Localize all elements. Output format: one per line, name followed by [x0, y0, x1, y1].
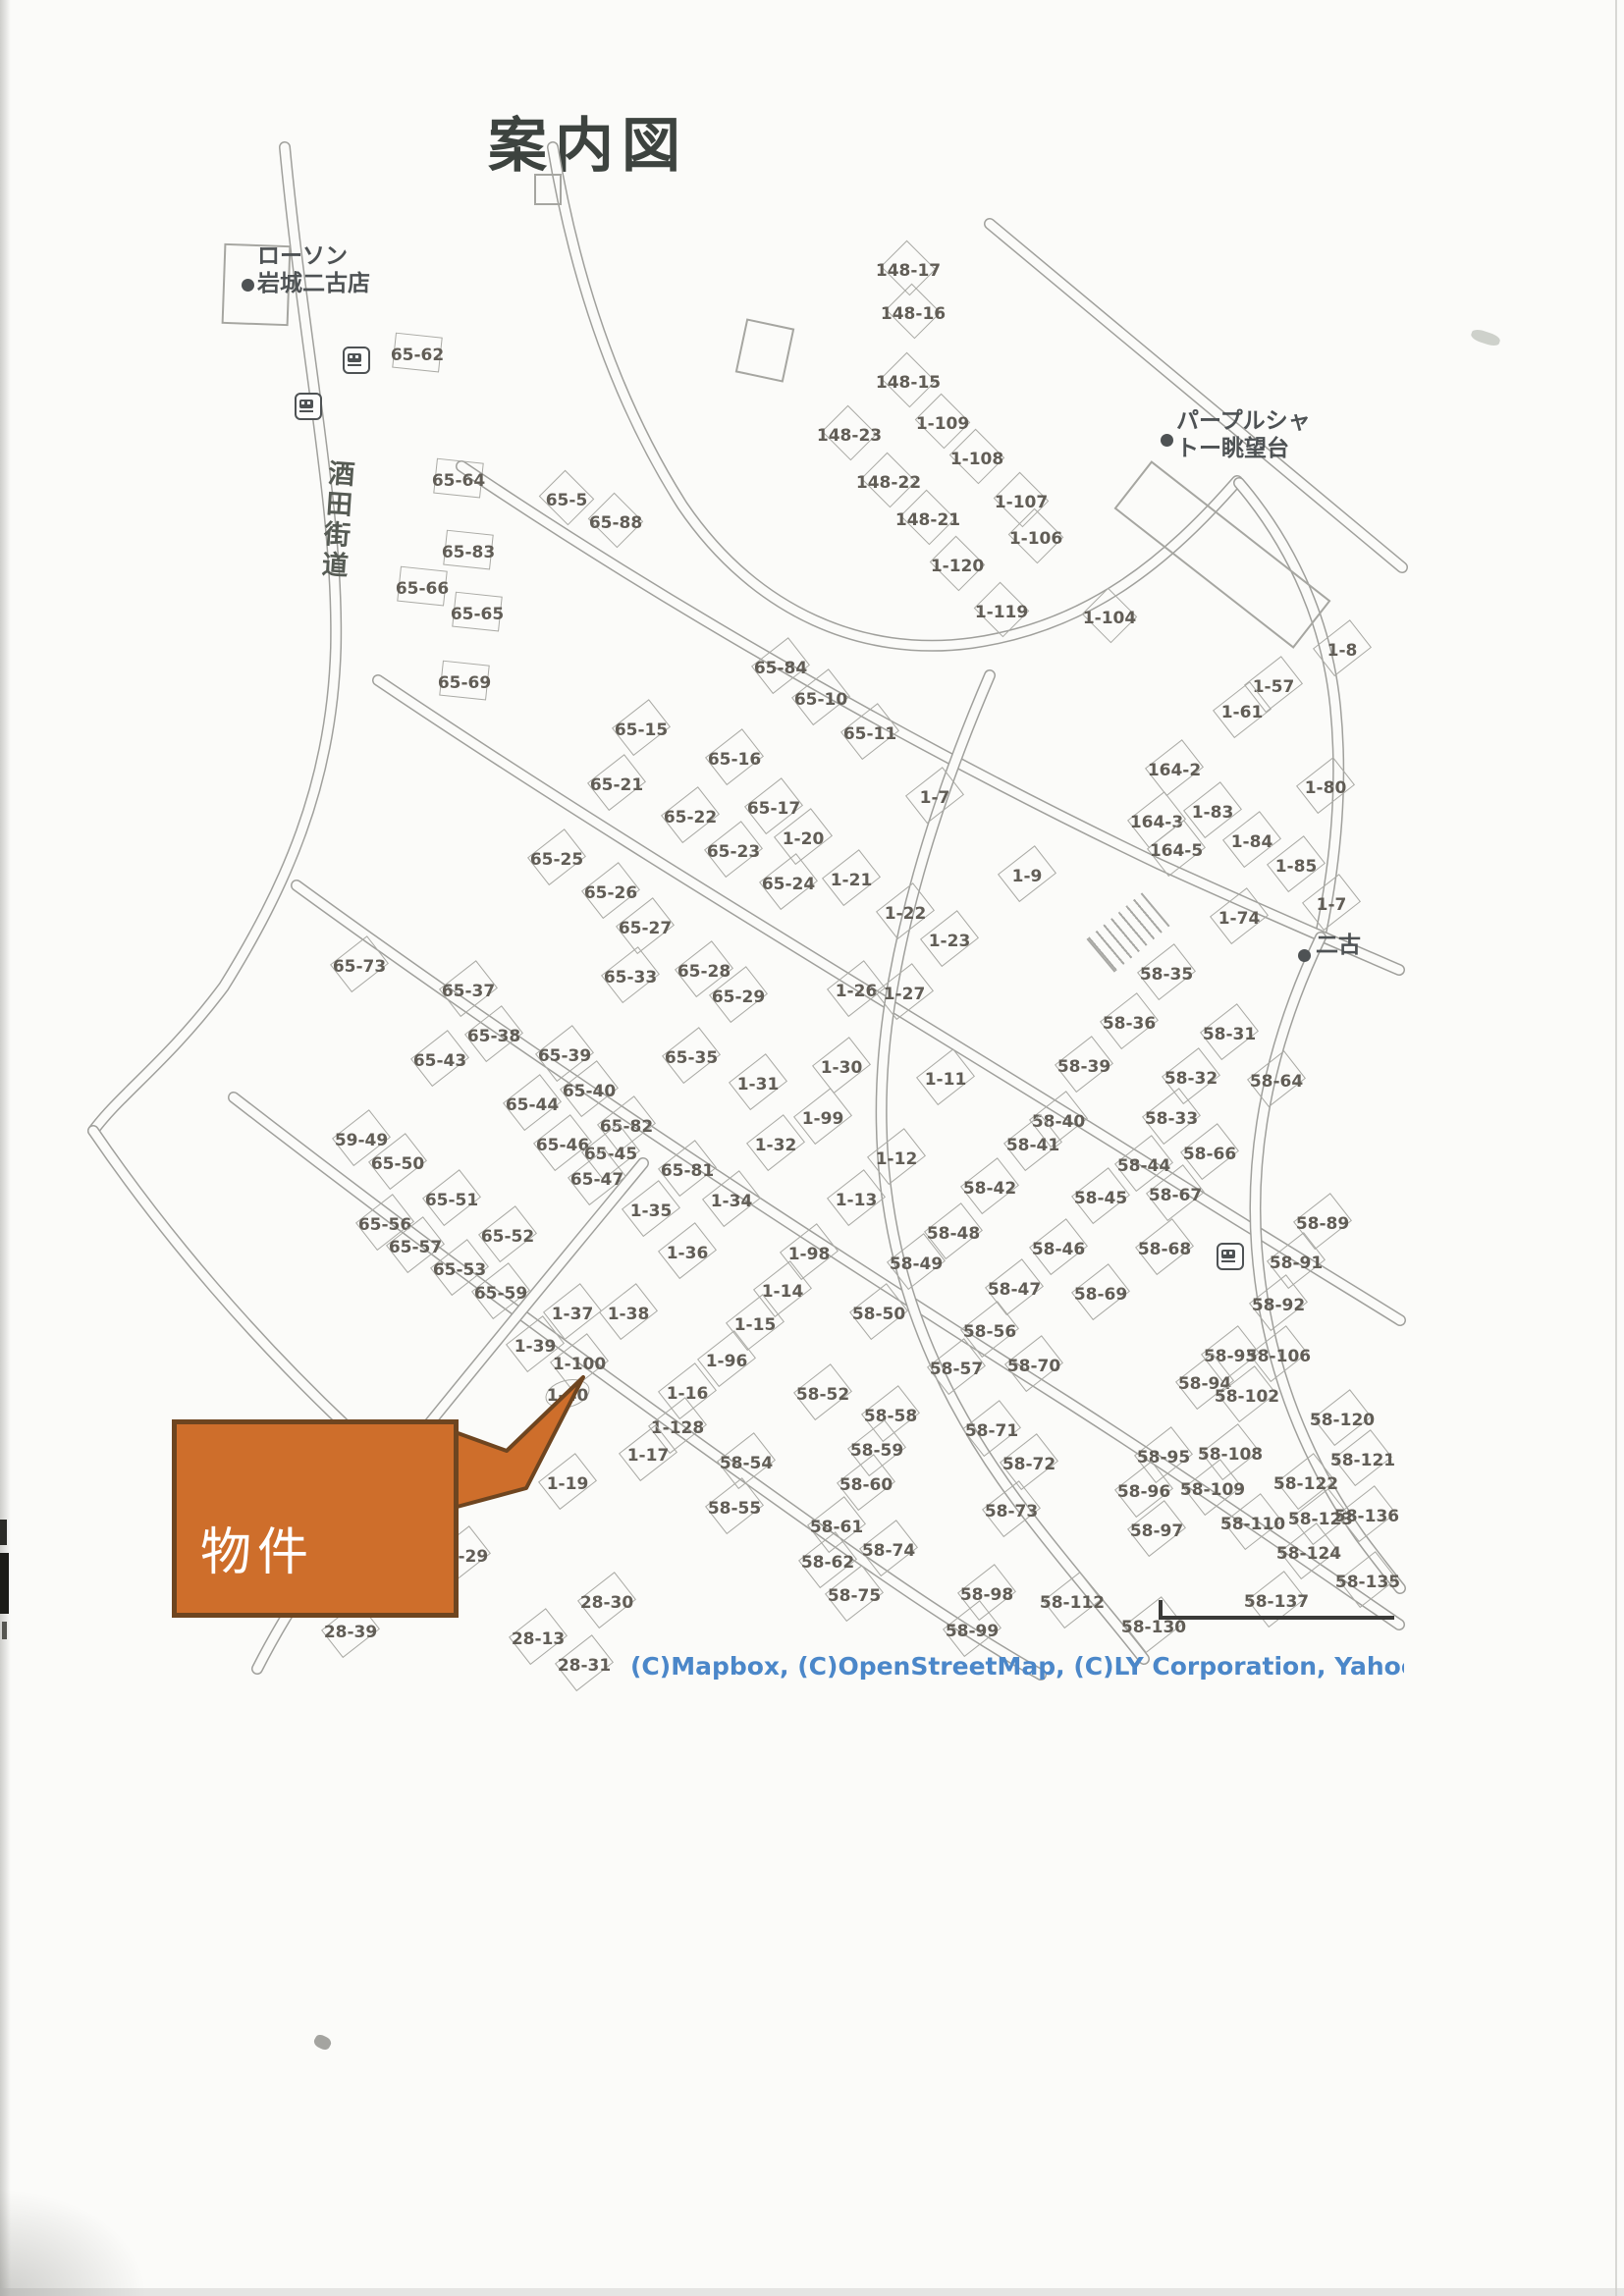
property-callout-box: 物件 — [172, 1419, 459, 1618]
scan-mark — [2, 1622, 7, 1639]
scan-mark — [0, 1553, 9, 1614]
property-callout-pointer — [0, 0, 1624, 2296]
scanned-guide-map-page: 案内図 — [0, 0, 1624, 2296]
scan-smudge — [0, 2189, 147, 2296]
scan-edge-left — [0, 0, 11, 2296]
scan-mark — [0, 1520, 7, 1545]
scan-edge-right — [1615, 0, 1617, 2296]
scan-edge-bottom — [0, 2288, 1624, 2296]
property-callout-label: 物件 — [200, 1511, 314, 1584]
